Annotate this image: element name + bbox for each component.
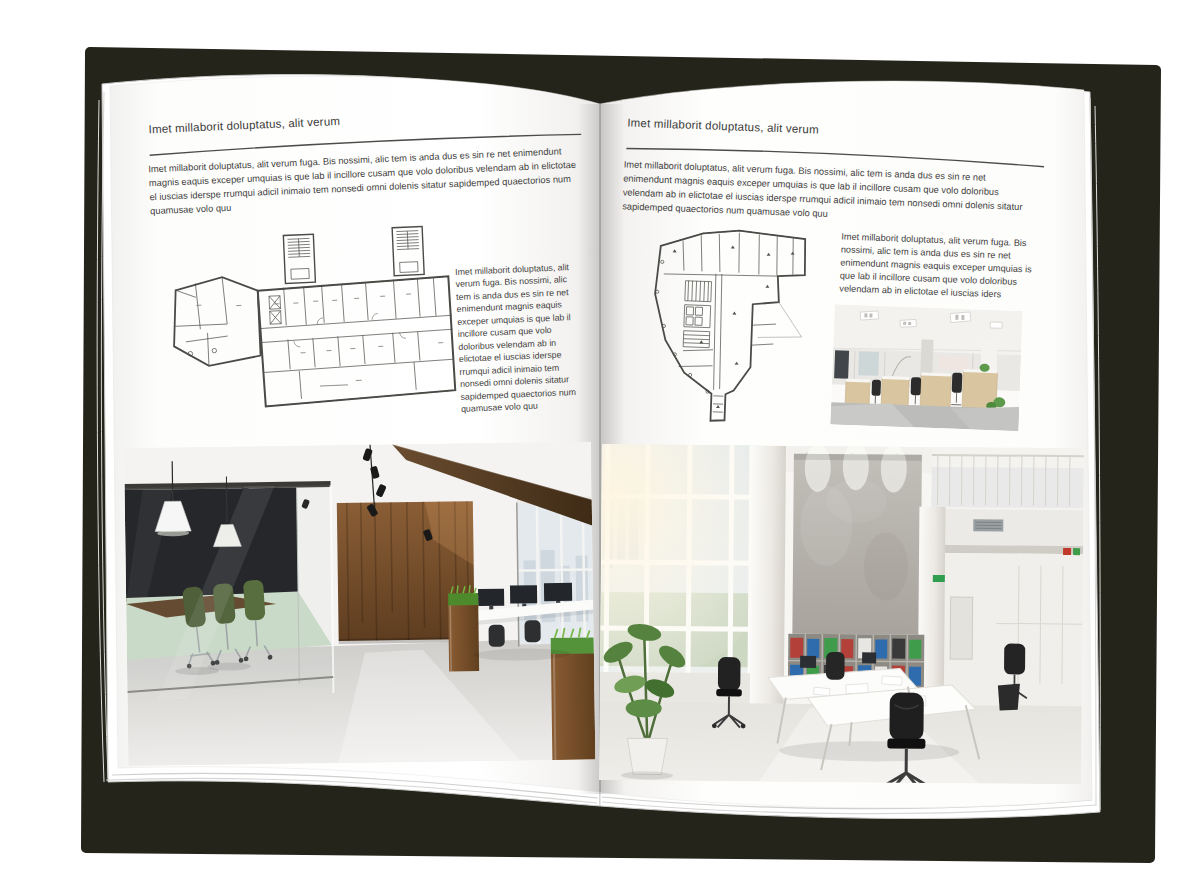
stair-elevator-core — [683, 281, 711, 348]
conference-room — [124, 459, 333, 700]
door-arcs — [293, 312, 406, 347]
office-photo-small — [830, 304, 1022, 431]
office-photo-left — [124, 441, 595, 765]
room-partitions — [660, 230, 795, 393]
outer-walls — [650, 228, 806, 424]
intro-paragraph: Imet millaborit doluptatus, alit verum f… — [622, 158, 1036, 229]
intro-paragraph: Imet millaborit doluptatus, alit verum f… — [148, 145, 580, 219]
side-text: Imet millaborit doluptatus, alit verum f… — [455, 261, 587, 416]
main-block — [257, 276, 455, 406]
room-labels — [196, 293, 444, 388]
side-text: Imet millaborit doluptatus, alit verum f… — [839, 230, 1049, 303]
floor-plan-left — [163, 222, 473, 423]
column — [750, 445, 786, 707]
office-photo-right — [599, 444, 1084, 784]
exit-sign — [933, 575, 945, 582]
magazine-mockup-scene: Imet millaborit doluptatus, alit verum I… — [0, 0, 1200, 891]
concrete-wall — [792, 444, 922, 635]
glass-wall — [125, 485, 334, 700]
bottom-stem — [713, 396, 724, 412]
door — [950, 597, 973, 659]
annotation-leader — [758, 301, 803, 339]
stair-tower — [392, 226, 424, 275]
stair-tower — [283, 234, 315, 283]
floor-plan-right — [636, 221, 817, 429]
left-wing — [171, 276, 261, 368]
page-title: Imet millaborit doluptatus, alit verum — [148, 115, 340, 135]
elevator-core — [269, 296, 281, 324]
vent-grille — [973, 519, 1003, 531]
facade-columns — [652, 260, 714, 393]
page-title: Imet millaborit doluptatus, alit verum — [627, 117, 819, 136]
planter — [551, 627, 596, 760]
planter — [448, 585, 479, 671]
waste-bin — [998, 683, 1020, 710]
